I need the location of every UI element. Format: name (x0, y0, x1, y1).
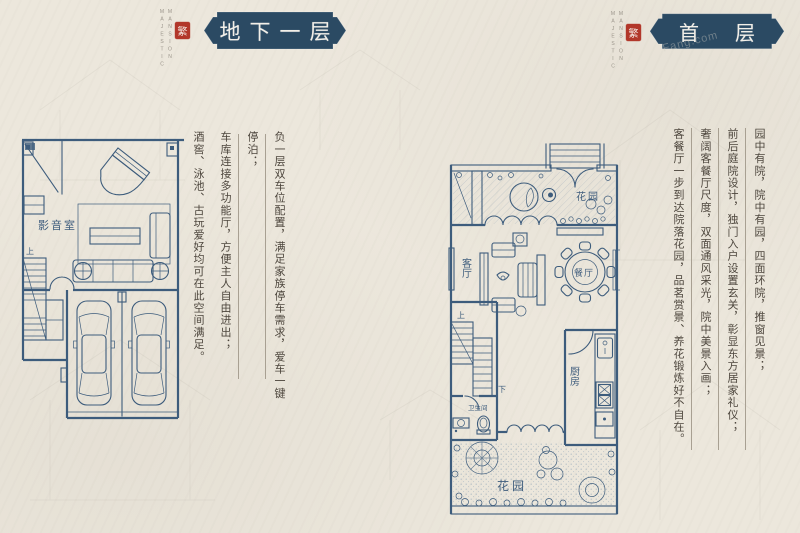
divider-line (238, 134, 239, 379)
feature-paragraph: 奢阔客餐厅尺度，双面通风采光，院中美景入画； (691, 128, 718, 450)
sink-icon (453, 418, 469, 432)
car-icon (74, 301, 115, 405)
banner-first-floor: 首层 (648, 10, 786, 53)
kitchen-label: 厨房 (568, 366, 580, 387)
red-seal-icon: 繁 (175, 22, 190, 39)
down-label: 下 (498, 385, 506, 394)
feature-paragraph: 前后庭院设计，独门入户设置玄关，彰显东方居家礼仪； (718, 128, 745, 450)
first-floor-floorplan: 花园 客厅 (445, 138, 620, 523)
car-icon (129, 301, 170, 405)
brand-word-majestic: MAJESTIC (610, 11, 616, 71)
brand-mark-left: MAJESTIC MANSION 繁 (159, 9, 190, 69)
bathroom: 卫生间 (451, 396, 497, 440)
plant-icon (516, 306, 526, 316)
stove-icon (596, 382, 613, 408)
basement-description: 负一层双车位配置，满足家族停车需求，爱车一键停泊； 车库连接多功能厅，方便主人自… (206, 131, 292, 403)
stairs-icon: 上 (23, 247, 63, 340)
folding-door-icon (497, 425, 565, 432)
brand-word-mansion: MANSION (167, 9, 173, 62)
red-seal-icon: 繁 (626, 24, 641, 41)
feature-paragraph: 园中有院，院中有园，四面环院，推窗见景； (745, 128, 772, 450)
first-floor-description: 园中有院，院中有园，四面环院，推窗见景； 前后庭院设计，独门入户设置玄关，彰显东… (660, 128, 772, 450)
living-label: 客厅 (460, 257, 472, 278)
toilet-icon (477, 416, 490, 434)
brand-word-mansion: MANSION (618, 11, 624, 64)
feature-paragraph: 酒窖、泳池、古玩爱好均可在此空间满足。 (184, 131, 211, 403)
tree-icon (466, 442, 498, 474)
bath-label: 卫生间 (468, 403, 488, 412)
first-floor-title: 首层 (666, 10, 800, 53)
feature-paragraph: 车库连接多功能厅，方便主人自由进出； (211, 131, 238, 403)
up-label: 上 (457, 311, 465, 320)
divider-line (265, 134, 266, 379)
feature-paragraph: 客餐厅一步到达院落花园，品茗赏景、养花锻炼好不自在。 (664, 128, 691, 450)
piano-icon (93, 148, 149, 205)
back-garden-label: 花园 (497, 478, 527, 493)
brand-mark-right: MAJESTIC MANSION 繁 (610, 11, 641, 71)
divider-line (691, 128, 692, 450)
storage-ramp (24, 140, 62, 214)
banner-basement: 地下一层 (202, 8, 348, 53)
up-label: 上 (26, 247, 34, 256)
divider-line (745, 128, 746, 450)
front-garden-label: 花园 (576, 190, 600, 203)
garage (61, 290, 178, 418)
stairs-icon: 上 下 (451, 302, 506, 396)
basement-floorplan: 影音室 上 (18, 128, 193, 423)
brochure-page: MAJESTIC MANSION 繁 地下一层 MAJESTIC MANSION… (0, 0, 800, 533)
back-garden: 花园 (452, 442, 616, 506)
brand-word-majestic: MAJESTIC (159, 9, 165, 69)
kitchen: 厨房 (565, 330, 617, 445)
sofa-set-icon (73, 204, 170, 282)
kitchen-sink-icon (598, 338, 613, 358)
divider-line (718, 128, 719, 450)
theater-label: 影音室 (38, 218, 77, 232)
basement-title: 地下一层 (207, 8, 353, 53)
dining-room: 餐厅 (555, 242, 620, 302)
dining-label: 餐厅 (574, 267, 594, 278)
